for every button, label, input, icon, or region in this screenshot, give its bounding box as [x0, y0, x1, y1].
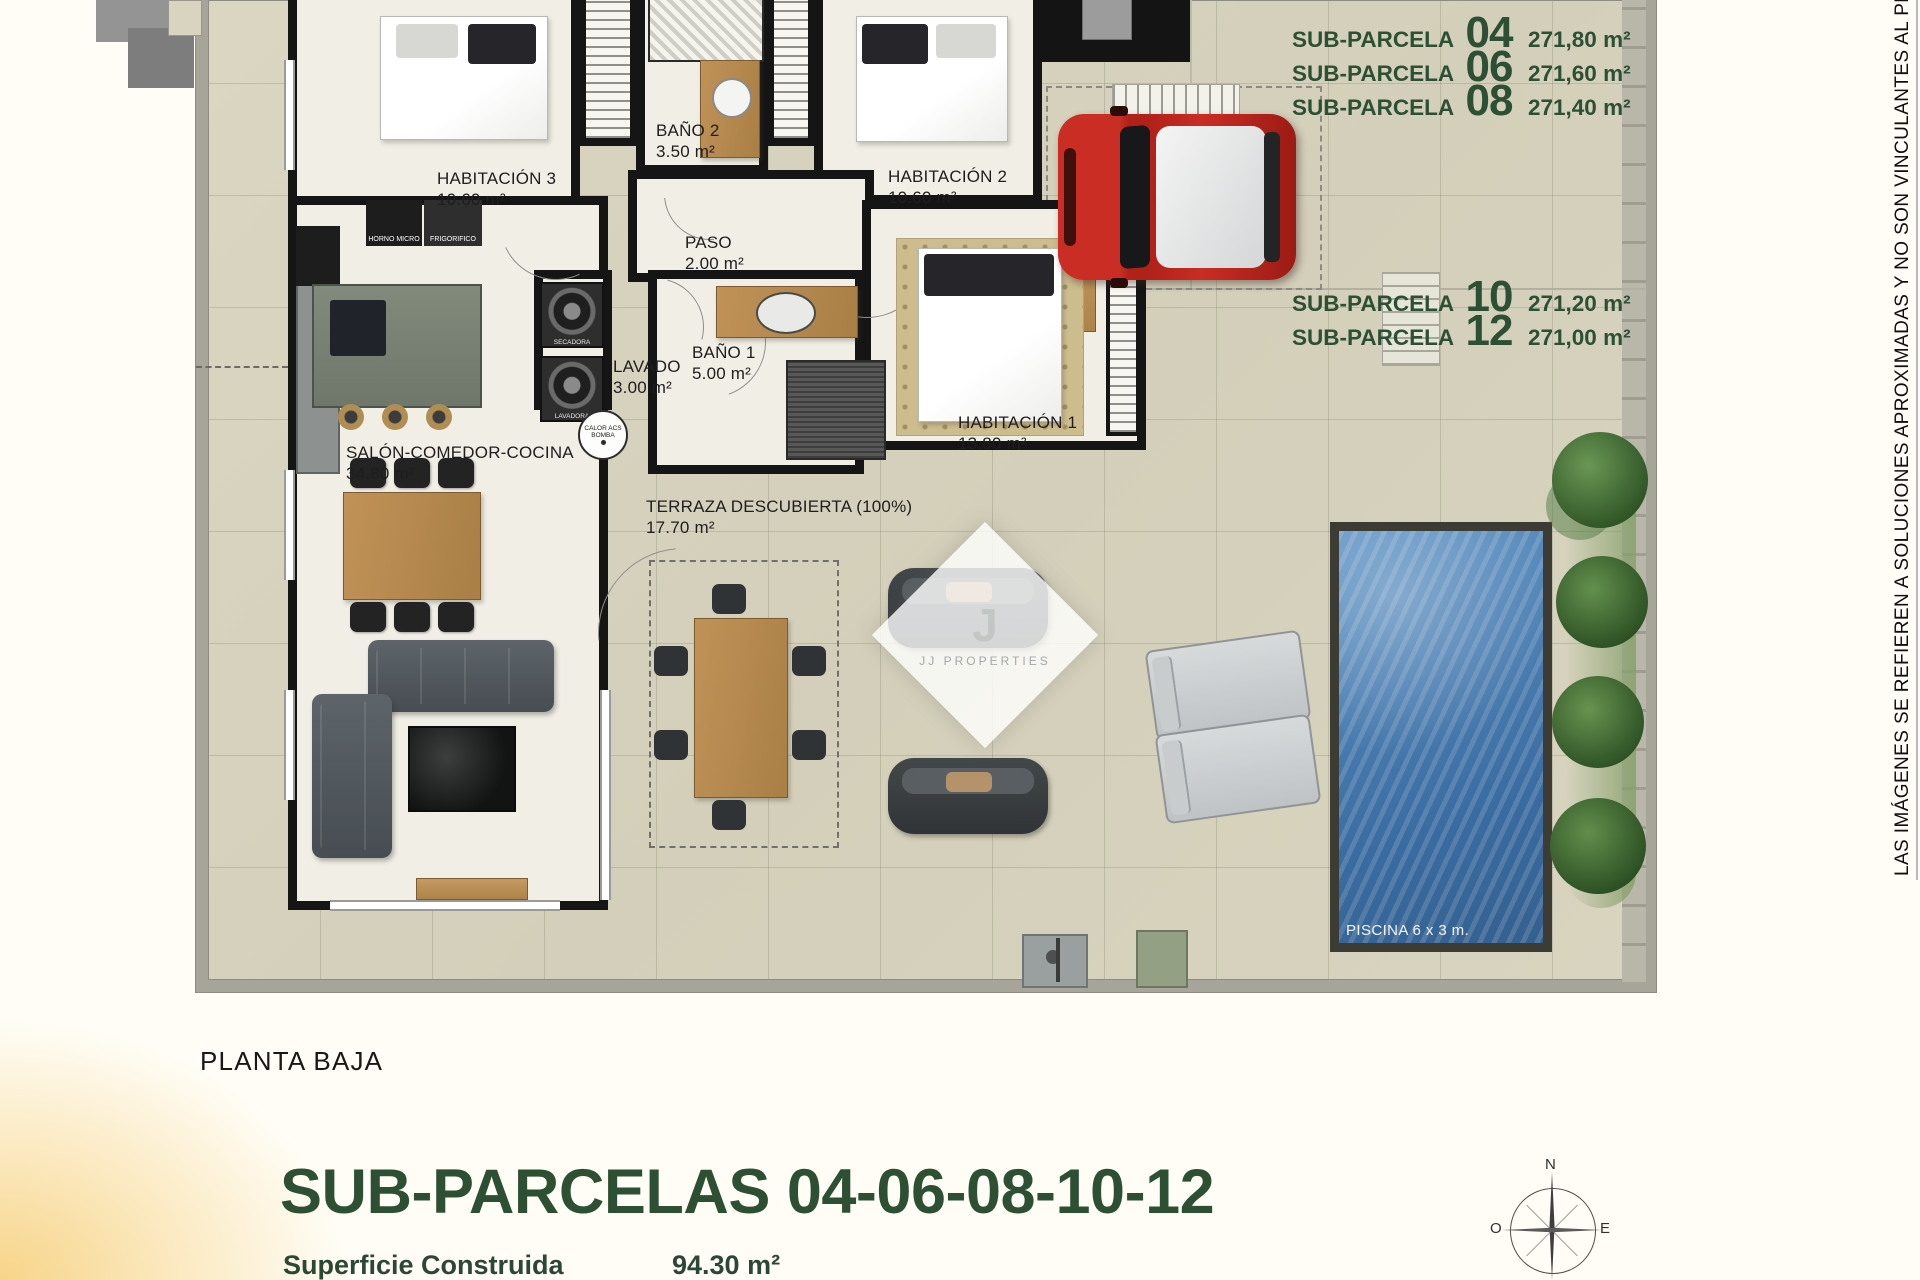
compass-rose: N O E [1492, 1160, 1612, 1280]
sink-bano-1 [756, 292, 816, 334]
sofa [368, 640, 554, 712]
subparcela-area: 271,40 m² [1528, 95, 1631, 121]
shower-bano-2 [648, 0, 764, 62]
terrace-glass-door [600, 690, 611, 900]
dining-chair [438, 602, 474, 632]
subparcela-number: 12 [1450, 306, 1528, 356]
subparcela-label: SUB-PARCELA [1292, 61, 1450, 87]
built-area-label: Superficie Construida [283, 1250, 564, 1280]
room-area: 13.80 m² [958, 433, 1077, 454]
room-name: HABITACIÓN 2 [888, 166, 1007, 187]
wardrobe-closet [766, 0, 816, 146]
heat-pump-dot [601, 440, 606, 445]
dryer-label: SECADORA [554, 339, 590, 346]
room-area: 3.00 m² [613, 377, 681, 398]
room-area: 10.60 m² [437, 189, 556, 210]
shower-bano-1 [786, 360, 886, 460]
label-bano-1: BAÑO 1 5.00 m² [692, 342, 756, 385]
heat-pump-label: BOMBA [591, 432, 614, 439]
room-area: 34.80 m² [346, 463, 574, 484]
pool-label: PISCINA 6 x 3 m. [1346, 922, 1469, 939]
outdoor-chair [654, 646, 688, 676]
heat-pump-label: CALOR ACS [584, 425, 621, 432]
room-name: BAÑO 1 [692, 342, 756, 363]
watermark-diamond: J JJ PROPERTIES [872, 522, 1098, 748]
label-paso: PASO 2.00 m² [685, 232, 744, 275]
heat-pump-symbol: CALOR ACS BOMBA [578, 410, 628, 460]
label-lavado: LAVADO 3.00 m² [613, 356, 681, 399]
coffee-table [408, 726, 516, 812]
car [1058, 114, 1296, 280]
dryer: SECADORA [540, 282, 604, 348]
subparcela-number: 08 [1450, 76, 1528, 126]
kitchen-appliance [296, 226, 340, 286]
utility-box [1022, 934, 1088, 988]
utility-box [1136, 930, 1188, 988]
subparcela-label: SUB-PARCELA [1292, 291, 1450, 317]
label-bano-2: BAÑO 2 3.50 m² [656, 120, 720, 163]
bush [1550, 798, 1646, 894]
outdoor-chair [792, 730, 826, 760]
room-name: LAVADO [613, 356, 681, 377]
parcel-dashed-line [196, 366, 288, 368]
garage-gray-square [1082, 0, 1132, 40]
car-grille [1064, 148, 1076, 246]
room-name: PASO [685, 232, 744, 253]
outdoor-chair [712, 800, 746, 830]
utility-pole [1056, 938, 1060, 982]
pillow [862, 24, 928, 64]
page-edge-line [1916, 0, 1918, 880]
tv-unit [416, 878, 528, 900]
room-name: SALÓN-COMEDOR-COCINA [346, 442, 574, 463]
subparcela-area: 271,00 m² [1528, 325, 1631, 351]
car-mirror [1110, 278, 1128, 288]
pillow [396, 24, 458, 58]
car-roof [1156, 126, 1266, 268]
floor-title: PLANTA BAJA [200, 1046, 383, 1077]
compass-north-label: N [1545, 1156, 1556, 1173]
label-salon: SALÓN-COMEDOR-COCINA 34.80 m² [346, 442, 574, 485]
room-area: 2.00 m² [685, 253, 744, 274]
outdoor-dining-table [694, 618, 788, 798]
room-name: TERRAZA DESCUBIERTA (100%) [646, 496, 912, 517]
side-disclaimer: LAS IMÁGENES SE REFIEREN A SOLUCIONES AP… [1892, 0, 1914, 876]
room-name: HABITACIÓN 1 [958, 412, 1077, 433]
label-habitacion-2: HABITACIÓN 2 10.60 m² [888, 166, 1007, 209]
pool [1330, 522, 1552, 952]
wicker-sofa [888, 758, 1048, 834]
compass-east-label: E [1600, 1220, 1610, 1237]
neighbor-structure [128, 28, 194, 88]
watermark-logo: J [972, 602, 998, 648]
pillow [924, 254, 1054, 296]
subparcela-list-bottom: SUB-PARCELA 10 271,20 m² SUB-PARCELA 12 … [1292, 272, 1631, 340]
bush [1556, 556, 1648, 648]
car-windshield [1120, 125, 1150, 269]
label-habitacion-1: HABITACIÓN 1 13.80 m² [958, 412, 1077, 455]
fridge-label: FRIGORIFICO [430, 236, 476, 244]
subparcela-label: SUB-PARCELA [1292, 95, 1450, 121]
dining-table [343, 492, 481, 600]
room-area: 5.00 m² [692, 363, 756, 384]
stool [338, 404, 364, 430]
floor-plan-page: SECADORA LAVADORA HORNO MICRO FRIGORIFIC… [0, 0, 1920, 1280]
subparcela-area: 271,60 m² [1528, 61, 1631, 87]
room-area: 3.50 m² [656, 141, 720, 162]
stool [426, 404, 452, 430]
window [284, 60, 295, 170]
watermark-name: JJ PROPERTIES [919, 654, 1050, 668]
sofa [312, 694, 392, 858]
room-area: 10.60 m² [888, 187, 1007, 208]
watermark-content: J JJ PROPERTIES [905, 555, 1065, 715]
page-title: SUB-PARCELAS 04-06-08-10-12 [280, 1156, 1214, 1228]
dining-chair [350, 602, 386, 632]
room-name: BAÑO 2 [656, 120, 720, 141]
built-area-value: 94.30 m² [672, 1250, 780, 1280]
subparcela-list-top: SUB-PARCELA 04 271,80 m² SUB-PARCELA 06 … [1292, 8, 1631, 110]
subparcela-row: SUB-PARCELA 04 271,80 m² [1292, 8, 1631, 42]
sliding-door [330, 900, 560, 911]
subparcela-area: 271,20 m² [1528, 291, 1631, 317]
wardrobe-closet [578, 0, 638, 146]
subparcela-area: 271,80 m² [1528, 27, 1631, 53]
oven-label: HORNO MICRO [368, 236, 419, 244]
car-mirror [1110, 106, 1128, 116]
room-area: 17.70 m² [646, 517, 912, 538]
pillow [936, 24, 996, 58]
window [284, 690, 295, 800]
room-name: HABITACIÓN 3 [437, 168, 556, 189]
cooktop [330, 300, 386, 356]
neighbor-structure [168, 0, 202, 36]
compass-west-label: O [1490, 1220, 1502, 1237]
car-rear-window [1264, 132, 1280, 262]
outdoor-chair [792, 646, 826, 676]
dining-chair [394, 602, 430, 632]
window [284, 470, 295, 580]
subparcela-label: SUB-PARCELA [1292, 27, 1450, 53]
bush [1552, 432, 1648, 528]
sink-bano-2 [712, 78, 752, 118]
stool [382, 404, 408, 430]
outdoor-chair [712, 584, 746, 614]
oven-microwave: HORNO MICRO [366, 200, 422, 246]
subparcela-row: SUB-PARCELA 10 271,20 m² [1292, 272, 1631, 306]
label-terraza: TERRAZA DESCUBIERTA (100%) 17.70 m² [646, 496, 912, 539]
subparcela-label: SUB-PARCELA [1292, 325, 1450, 351]
outdoor-chair [654, 730, 688, 760]
pillow [468, 24, 536, 64]
bush [1552, 676, 1644, 768]
label-habitacion-3: HABITACIÓN 3 10.60 m² [437, 168, 556, 211]
